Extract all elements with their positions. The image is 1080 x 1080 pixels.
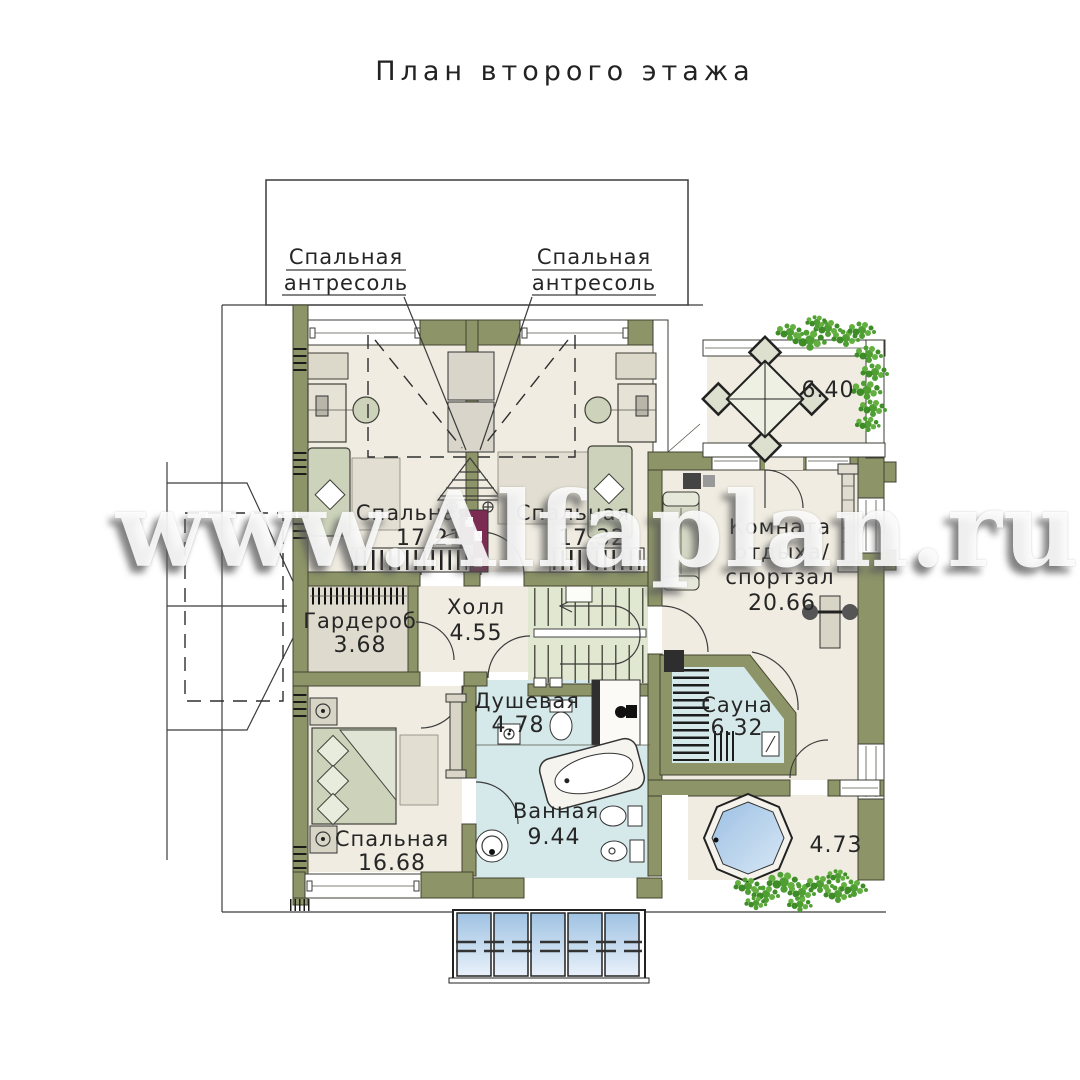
shower-label: Душевая <box>474 689 580 713</box>
monitor-icon <box>316 396 328 416</box>
shower-area: 4.78 <box>492 713 545 738</box>
callout-left-line1: Спальная <box>289 245 403 269</box>
hot-tub-icon <box>704 794 792 882</box>
wardrobe-area: 3.68 <box>334 633 387 658</box>
wardrobe-label: Гардероб <box>303 609 417 633</box>
bedroom1-top-window <box>308 320 422 345</box>
stove-icon <box>664 650 684 672</box>
hall-area: 4.55 <box>450 621 503 646</box>
void-diagonal <box>668 424 700 452</box>
shelf-icon <box>616 353 656 379</box>
callout-right-line2: антресоль <box>532 271 656 295</box>
monitor-icon <box>636 396 648 416</box>
bedroom3-area: 16.68 <box>358 851 426 876</box>
chair-icon <box>353 397 379 423</box>
toilet-icon <box>600 806 642 826</box>
balcony-bottom <box>662 794 792 882</box>
wardrobe-cabinet-icon <box>450 700 462 772</box>
page-title: План второго этажа <box>375 56 754 87</box>
floor-plan-page: План второго этажа <box>0 0 1080 1080</box>
balcony-bottom-area: 4.73 <box>810 833 863 858</box>
shelf-icon <box>308 353 348 379</box>
left-wall <box>293 305 308 905</box>
bath-area: 9.44 <box>528 825 581 850</box>
lounge-area: 20.66 <box>748 591 816 616</box>
sink-icon <box>476 830 508 862</box>
rug-icon <box>400 735 438 805</box>
sauna-label: Сауна <box>701 693 773 717</box>
chair-icon <box>585 397 611 423</box>
bidet-icon <box>601 840 644 862</box>
watermark: www.Alfaplan.ru <box>116 478 1080 582</box>
hall-label: Холл <box>447 595 505 619</box>
glazing-panels <box>449 910 649 983</box>
balcony-top-area: 6.40 <box>802 378 855 403</box>
callout-left-line2: антресоль <box>284 271 408 295</box>
callout-right-line1: Спальная <box>537 245 651 269</box>
bedroom3-label: Спальная <box>335 827 449 851</box>
bath-label: Ванная <box>513 799 599 823</box>
sauna-area: 6.32 <box>711 716 764 741</box>
